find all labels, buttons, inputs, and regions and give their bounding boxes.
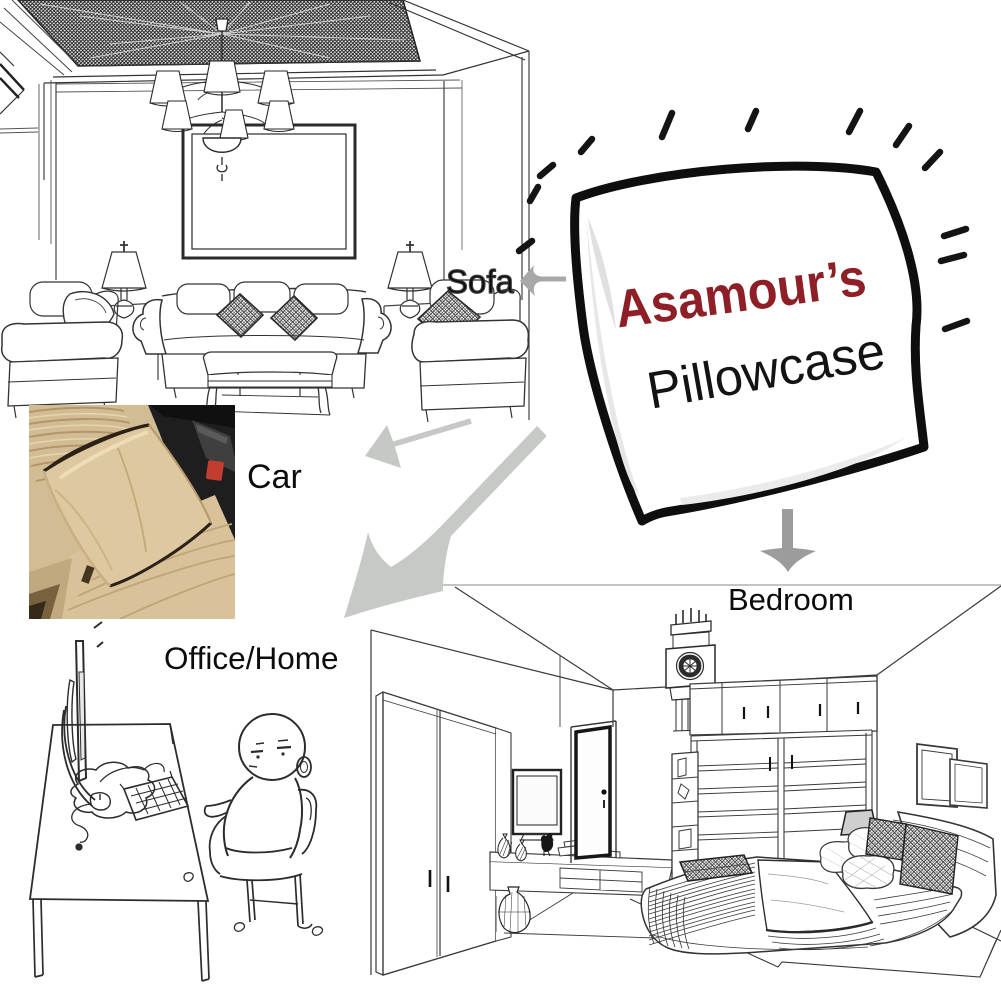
svg-text:Car: Car: [247, 458, 302, 496]
svg-text:Sofa: Sofa: [446, 263, 515, 300]
svg-text:Bedroom: Bedroom: [728, 582, 854, 617]
svg-text:Office/Home: Office/Home: [164, 640, 338, 676]
